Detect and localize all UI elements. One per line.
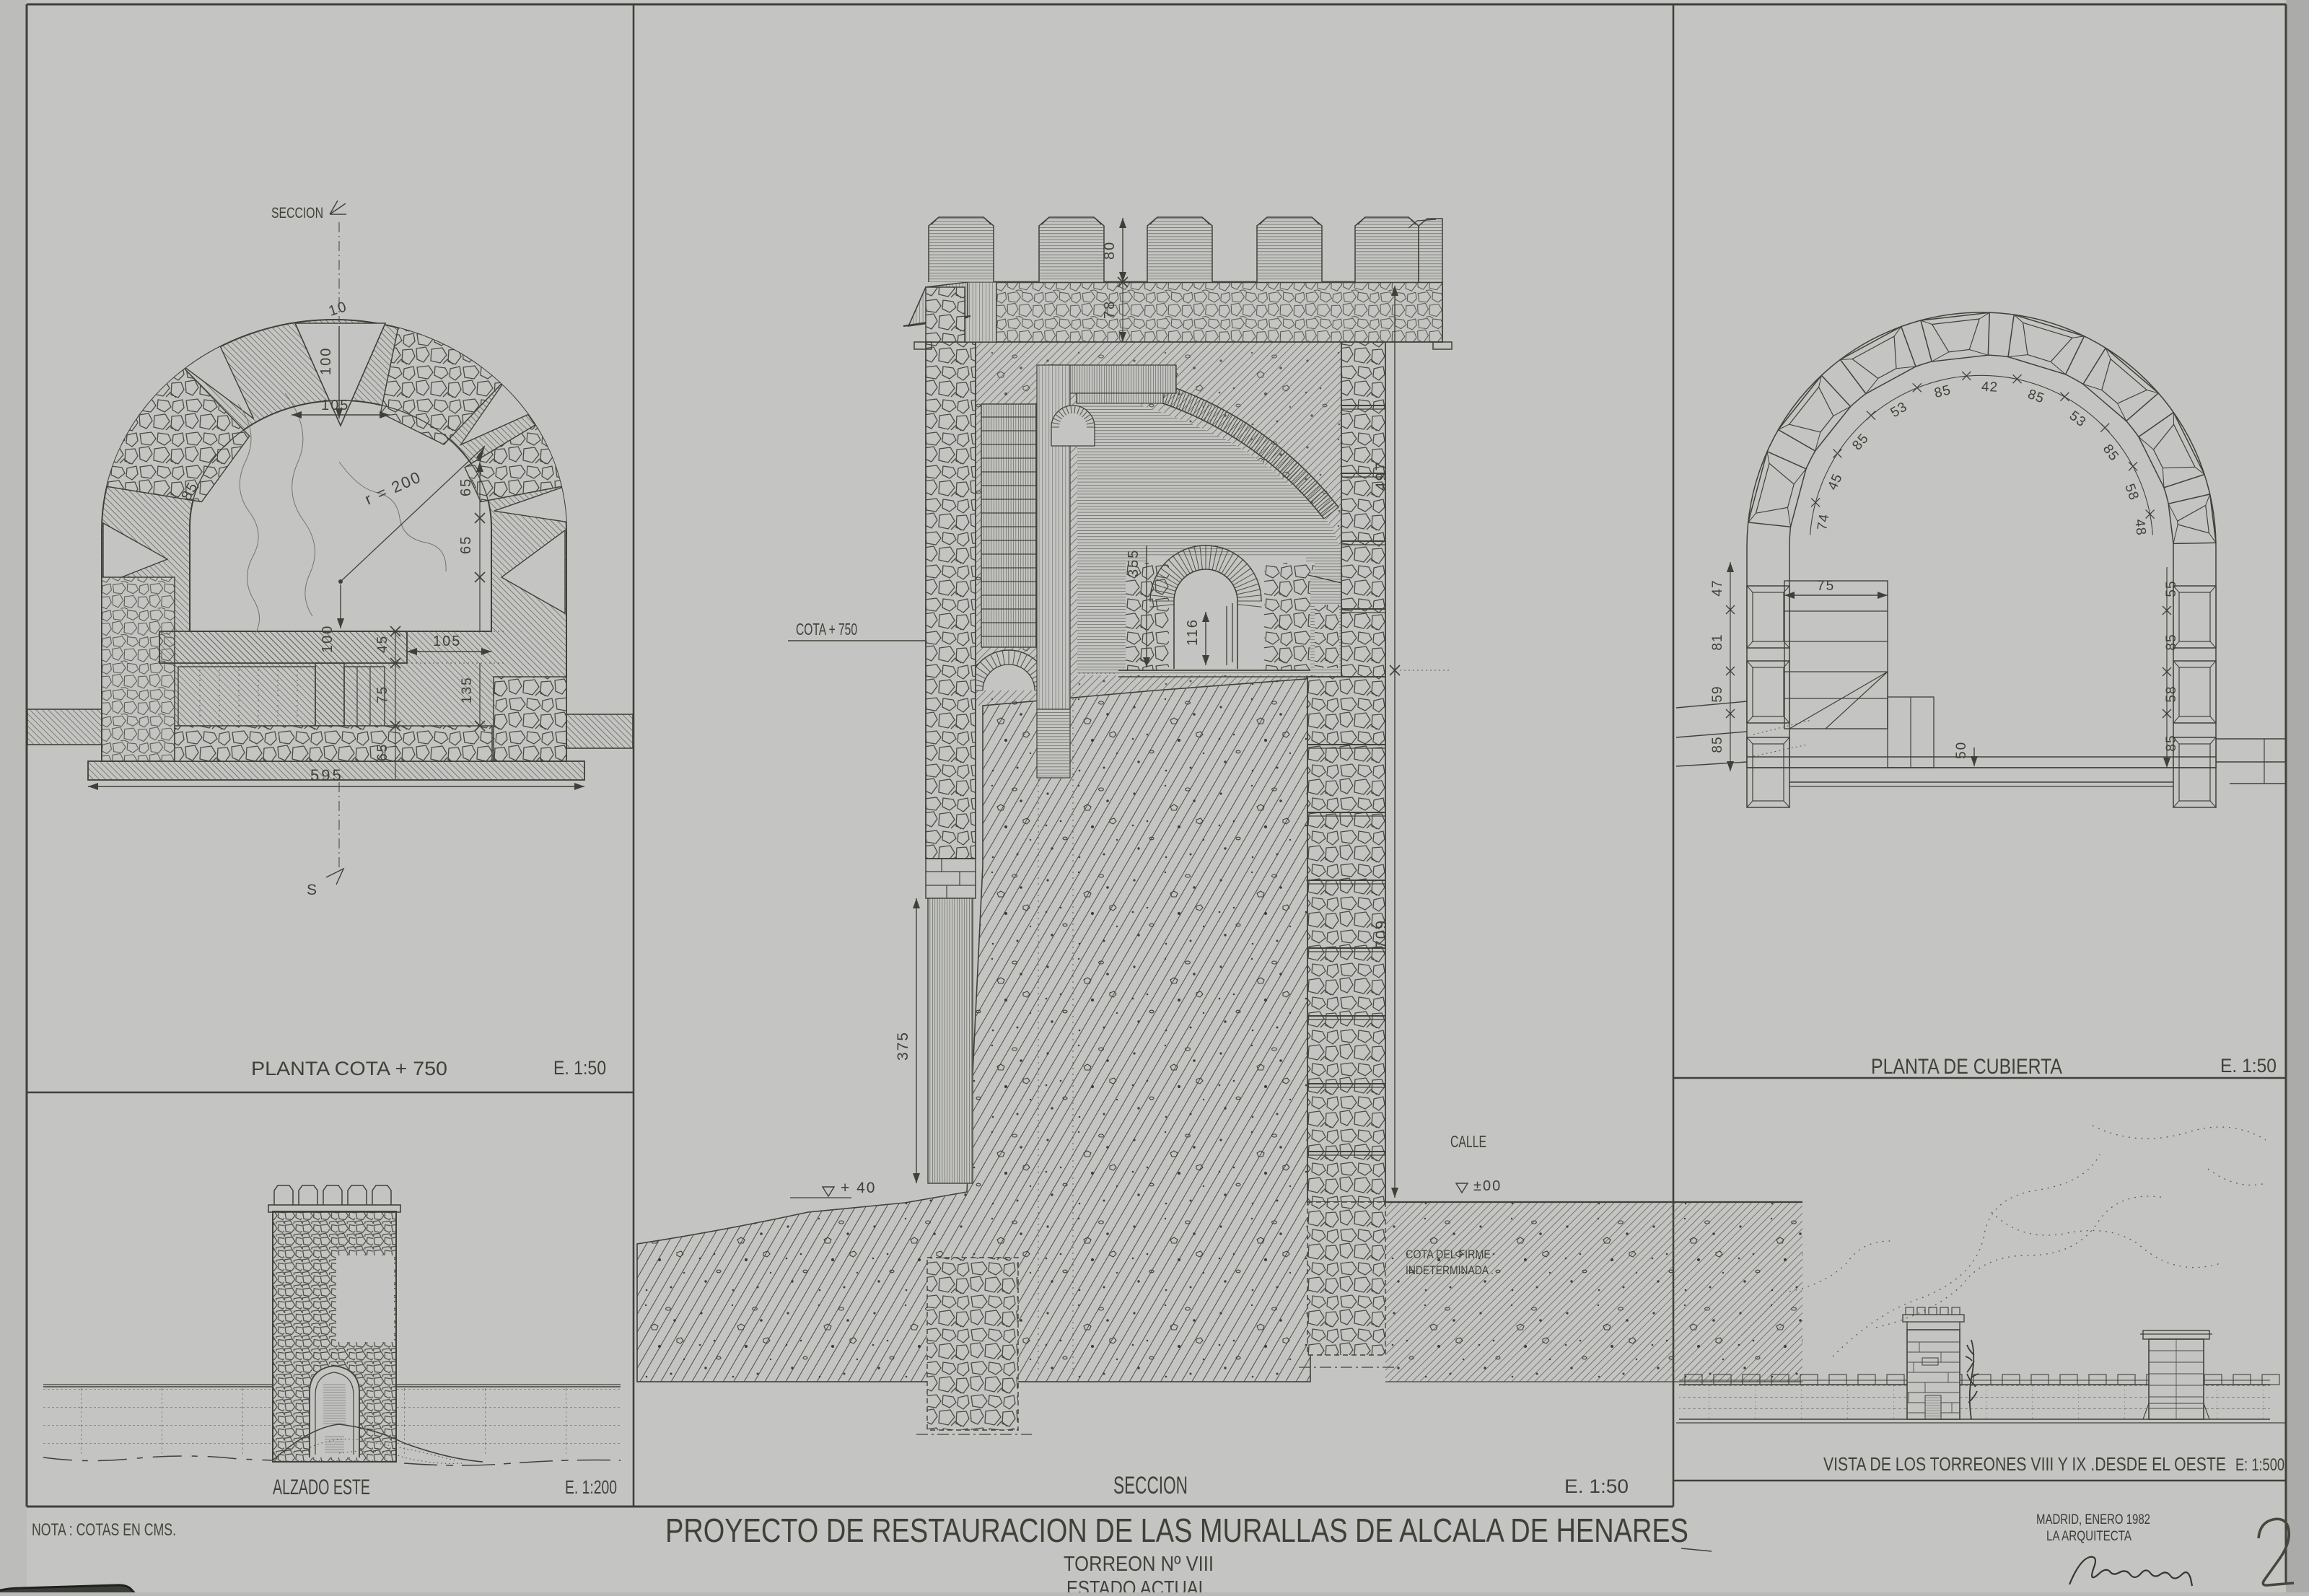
svg-text:SECCION: SECCION	[1113, 1472, 1188, 1499]
svg-text:E. 1:50: E. 1:50	[553, 1057, 606, 1079]
svg-text:NOTA : COTAS EN CMS.: NOTA : COTAS EN CMS.	[32, 1520, 176, 1540]
svg-text:78: 78	[1102, 300, 1118, 319]
svg-text:595: 595	[310, 766, 343, 784]
svg-text:59: 59	[1710, 685, 1725, 702]
svg-text:709: 709	[1373, 919, 1390, 949]
svg-text:MADRID, ENERO 1982: MADRID, ENERO 1982	[2036, 1512, 2150, 1527]
svg-text:65: 65	[375, 743, 390, 761]
svg-text:355: 355	[1126, 549, 1142, 577]
svg-text:E. 1:50: E. 1:50	[2220, 1055, 2277, 1077]
svg-text:42: 42	[1981, 380, 1998, 395]
svg-text:E. 1:50: E. 1:50	[1564, 1476, 1629, 1497]
svg-text:55: 55	[2164, 580, 2179, 597]
svg-text:100: 100	[318, 347, 334, 375]
svg-text:48: 48	[2131, 518, 2149, 537]
svg-text:E: 1:500: E: 1:500	[2235, 1455, 2284, 1475]
svg-text:SECCION: SECCION	[271, 205, 323, 222]
svg-text:497: 497	[1373, 461, 1390, 491]
svg-text:105: 105	[321, 398, 349, 413]
svg-text:PLANTA COTA + 750: PLANTA COTA + 750	[251, 1058, 447, 1079]
svg-text:S: S	[307, 882, 317, 898]
svg-text:VISTA DE LOS TORREONES VIII Y: VISTA DE LOS TORREONES VIII Y IX .DESDE …	[1823, 1453, 2226, 1475]
svg-text:+ 40: + 40	[841, 1180, 876, 1196]
svg-text:ALZADO ESTE: ALZADO ESTE	[273, 1476, 370, 1499]
svg-text:80: 80	[1102, 241, 1118, 260]
svg-text:±00: ±00	[1473, 1178, 1502, 1194]
svg-text:85: 85	[1710, 736, 1725, 753]
svg-text:COTA DEL FIRME: COTA DEL FIRME	[1406, 1248, 1491, 1261]
svg-text:65: 65	[458, 535, 474, 554]
svg-text:PROYECTO DE RESTAURACION DE: PROYECTO DE RESTAURACION DE LAS MURALLAS…	[665, 1512, 1688, 1549]
svg-text:74: 74	[1815, 512, 1832, 531]
svg-text:CALLE: CALLE	[1450, 1132, 1486, 1151]
svg-text:47: 47	[1710, 579, 1725, 596]
svg-text:105: 105	[433, 633, 461, 649]
svg-text:375: 375	[895, 1031, 911, 1061]
svg-text:50: 50	[1954, 741, 1969, 759]
svg-text:COTA + 750: COTA + 750	[796, 620, 857, 639]
svg-text:ESTADO ACTUAL: ESTADO ACTUAL	[1066, 1577, 1208, 1592]
svg-text:45: 45	[375, 635, 390, 653]
svg-text:116: 116	[1185, 618, 1201, 646]
svg-text:65: 65	[458, 478, 474, 496]
svg-text:PLANTA DE CUBIERTA: PLANTA DE CUBIERTA	[1871, 1055, 2062, 1079]
svg-text:85: 85	[2164, 633, 2179, 650]
svg-text:58: 58	[2164, 685, 2179, 702]
svg-text:75: 75	[375, 685, 390, 703]
svg-text:E. 1:200: E. 1:200	[565, 1476, 617, 1498]
svg-text:75: 75	[1817, 579, 1835, 594]
svg-text:81: 81	[1710, 633, 1725, 650]
svg-text:135: 135	[460, 676, 475, 703]
svg-text:TORREON Nº VIII: TORREON Nº VIII	[1064, 1553, 1214, 1576]
svg-text:100: 100	[320, 625, 336, 653]
svg-text:LA ARQUITECTA: LA ARQUITECTA	[2046, 1529, 2131, 1544]
svg-text:INDETERMINADA .: INDETERMINADA .	[1406, 1263, 1494, 1277]
svg-text:85: 85	[2164, 735, 2179, 751]
